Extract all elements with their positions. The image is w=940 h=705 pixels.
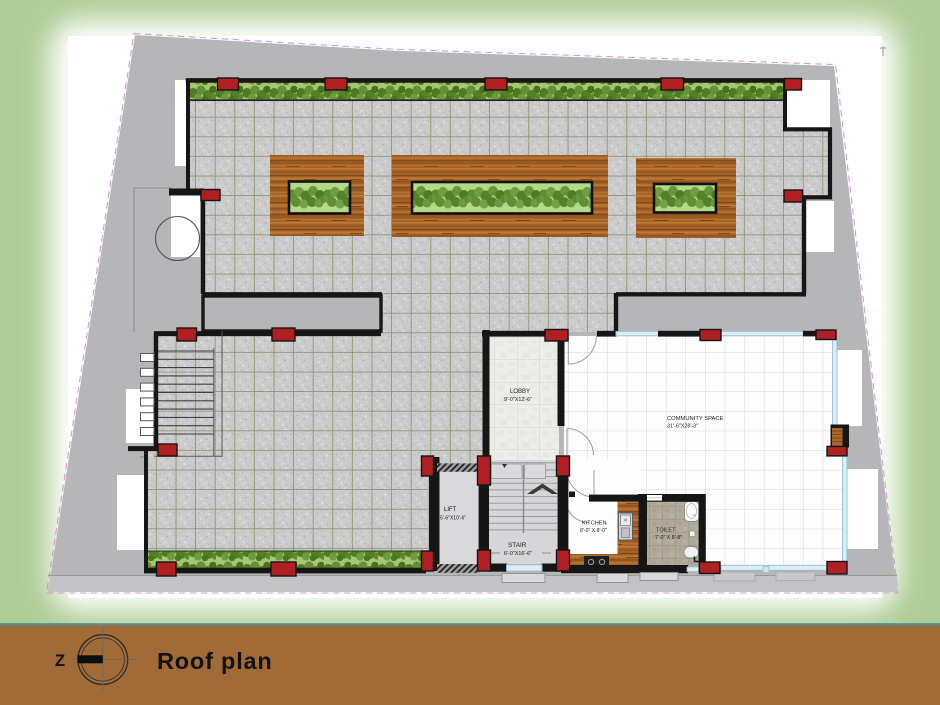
svg-text:KITCHEN: KITCHEN: [582, 521, 607, 527]
svg-text:LOBBY: LOBBY: [510, 389, 530, 395]
svg-text:8'-0" X 8'-0": 8'-0" X 8'-0": [580, 528, 607, 534]
svg-text:STAIR: STAIR: [508, 542, 527, 549]
svg-text:Z: Z: [55, 652, 65, 670]
svg-text:7'-0" X 8'-8": 7'-0" X 8'-8": [655, 535, 682, 541]
svg-text:6'-0"X16'-6": 6'-0"X16'-6": [504, 551, 532, 557]
svg-text:Roof plan: Roof plan: [157, 648, 273, 674]
svg-text:9'-0"X12'-6": 9'-0"X12'-6": [504, 397, 532, 403]
svg-text:LIFT: LIFT: [444, 507, 457, 513]
svg-text:TOILET: TOILET: [656, 528, 676, 534]
svg-text:5'-6"X10'-6": 5'-6"X10'-6": [440, 516, 466, 522]
svg-text:COMMUNITY SPACE: COMMUNITY SPACE: [667, 416, 724, 422]
svg-text:31'-6"X28'-3": 31'-6"X28'-3": [667, 424, 698, 430]
